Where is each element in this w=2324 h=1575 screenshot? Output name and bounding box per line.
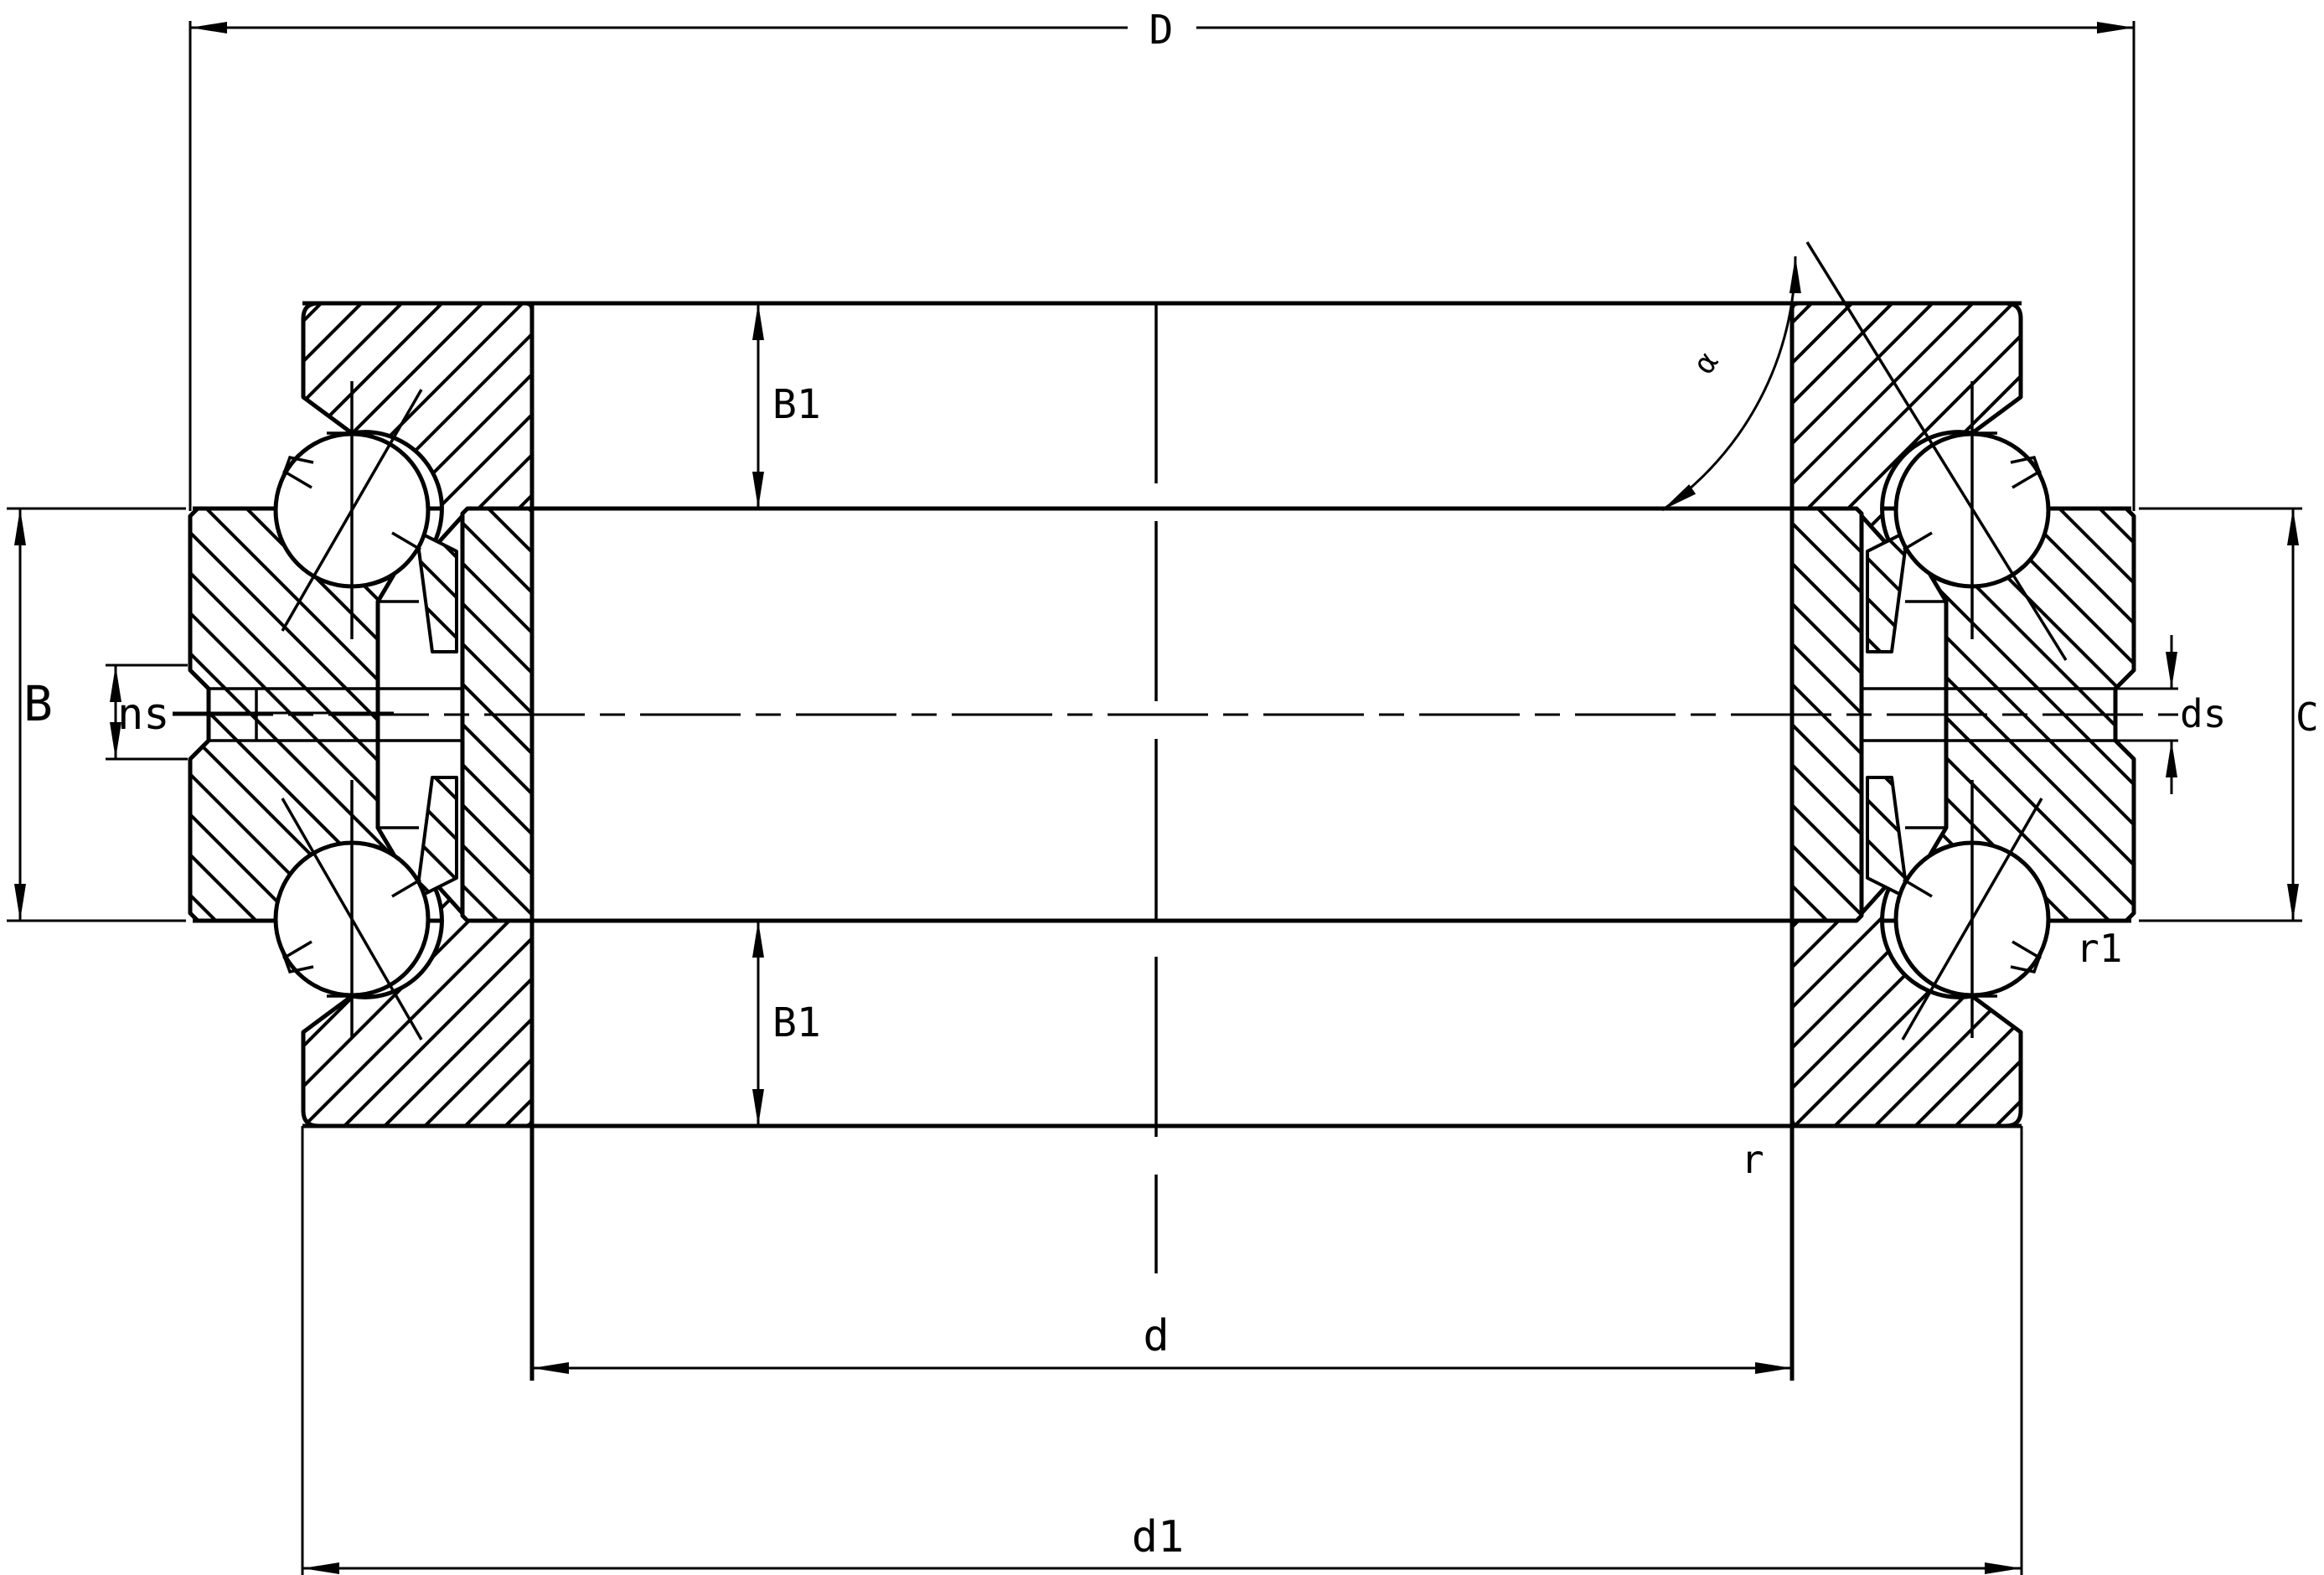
label-ns: ns bbox=[117, 689, 170, 740]
cage-bottom-right bbox=[1867, 777, 1908, 898]
label-d: d bbox=[1143, 1311, 1169, 1361]
label-r: r bbox=[1741, 1137, 1764, 1182]
angle-arc bbox=[1662, 256, 1795, 510]
label-D: D bbox=[1149, 7, 1174, 54]
label-C: C bbox=[2296, 695, 2319, 740]
label-B: B bbox=[23, 675, 53, 732]
label-r1: r1 bbox=[2076, 926, 2122, 971]
label-d1: d1 bbox=[1132, 1512, 1185, 1562]
cage-top-right bbox=[1867, 531, 1908, 652]
technical-drawing-page: D B1 B1 B ns ds C d d1 r r1 α bbox=[0, 0, 2324, 1575]
bearing-section-drawing: D B1 B1 B ns ds C d d1 r r1 α bbox=[0, 0, 2324, 1575]
cage-top-left bbox=[416, 531, 457, 652]
dimension-contact-angle bbox=[1662, 256, 1795, 510]
label-B1-lower: B1 bbox=[772, 999, 821, 1046]
label-contact-angle: α bbox=[1687, 346, 1726, 380]
label-B1-upper: B1 bbox=[772, 381, 821, 428]
cage-bottom-left bbox=[416, 777, 457, 898]
label-ds: ds bbox=[2180, 691, 2226, 736]
